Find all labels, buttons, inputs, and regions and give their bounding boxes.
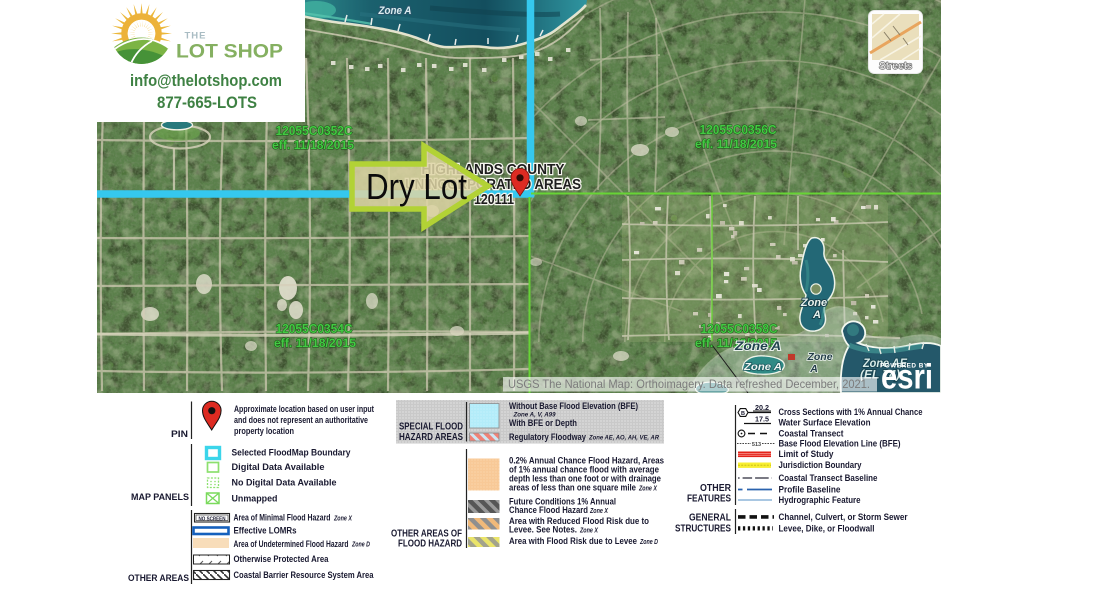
svg-text:Approximate location based on: Approximate location based on user input [234, 404, 374, 414]
svg-text:Base Flood Elevation Line (BFE: Base Flood Elevation Line (BFE) [779, 438, 901, 448]
svg-text:With BFE or Depth: With BFE or Depth [509, 418, 577, 428]
svg-text:LOT SHOP: LOT SHOP [176, 41, 283, 63]
svg-text:Coastal Transect: Coastal Transect [779, 429, 844, 439]
svg-text:17.5: 17.5 [755, 417, 769, 424]
svg-text:A: A [812, 309, 821, 321]
svg-text:Zone D: Zone D [351, 542, 370, 549]
svg-text:Zone AE, AO, AH, VE, AR: Zone AE, AO, AH, VE, AR [588, 435, 659, 442]
svg-text:Hydrographic Feature: Hydrographic Feature [779, 495, 861, 505]
svg-text:B: B [741, 411, 745, 417]
svg-text:Selected FloodMap Boundary: Selected FloodMap Boundary [232, 448, 351, 458]
svg-text:513: 513 [752, 442, 761, 448]
svg-text:Levee, Dike, or Floodwall: Levee, Dike, or Floodwall [779, 523, 875, 533]
svg-text:Unmapped: Unmapped [232, 494, 278, 504]
svg-text:HAZARD AREAS: HAZARD AREAS [399, 432, 463, 443]
svg-text:Effective LOMRs: Effective LOMRs [234, 525, 297, 535]
svg-text:esri: esri [881, 358, 933, 397]
svg-text:Without Base Flood Elevation (: Without Base Flood Elevation (BFE) [509, 401, 638, 411]
svg-text:Zone X: Zone X [579, 527, 599, 534]
svg-text:Limit of Study: Limit of Study [779, 449, 834, 459]
svg-text:FEATURES: FEATURES [687, 494, 731, 505]
svg-text:Zone A: Zone A [743, 361, 782, 373]
svg-text:12055C0354C: 12055C0354C [276, 322, 353, 336]
svg-text:Zone X: Zone X [333, 515, 353, 522]
svg-text:Water Surface Elevation: Water Surface Elevation [779, 417, 871, 427]
svg-text:OTHER: OTHER [700, 483, 732, 494]
svg-text:Zone D: Zone D [639, 539, 658, 546]
svg-text:Streets: Streets [879, 60, 912, 72]
svg-text:Coastal Barrier Resource Syste: Coastal Barrier Resource System Area [234, 570, 375, 580]
svg-text:Regulatory Floodway: Regulatory Floodway [509, 432, 586, 442]
svg-text:eff. 11/18/2015: eff. 11/18/2015 [272, 138, 354, 152]
svg-text:Zone X: Zone X [589, 508, 609, 515]
svg-text:Area of Undetermined Flood Haz: Area of Undetermined Flood Hazard [234, 539, 349, 549]
svg-text:12055C0352C: 12055C0352C [276, 124, 353, 138]
svg-text:eff. 11/18/2015: eff. 11/18/2015 [695, 137, 777, 151]
svg-text:MAP PANELS: MAP PANELS [131, 492, 189, 503]
svg-text:Zone: Zone [806, 351, 832, 363]
svg-text:PIN: PIN [171, 429, 188, 440]
svg-text:Otherwise Protected Area: Otherwise Protected Area [234, 554, 330, 564]
svg-text:12055C0356C: 12055C0356C [700, 123, 777, 137]
svg-text:Coastal Transect Baseline: Coastal Transect Baseline [779, 473, 878, 483]
svg-text:eff. 11/18/2015: eff. 11/18/2015 [274, 336, 356, 350]
svg-text:NO SCREEN: NO SCREEN [199, 516, 226, 522]
svg-text:Profile Baseline: Profile Baseline [779, 485, 841, 495]
svg-text:OTHER AREAS: OTHER AREAS [128, 573, 189, 584]
svg-text:Digital Data Available: Digital Data Available [232, 462, 325, 472]
svg-text:Area with Flood Risk due to Le: Area with Flood Risk due to Levee [509, 536, 637, 546]
svg-text:Dry Lot: Dry Lot [366, 166, 467, 207]
svg-text:A: A [809, 363, 818, 375]
svg-text:Chance Flood Hazard: Chance Flood Hazard [509, 505, 588, 515]
svg-text:Zone: Zone [800, 297, 827, 309]
svg-text:120111: 120111 [474, 192, 514, 208]
svg-text:Jurisdiction Boundary: Jurisdiction Boundary [779, 460, 862, 470]
svg-text:GENERAL: GENERAL [689, 513, 731, 524]
svg-text:and does not represent an auth: and does not represent an authoritative [234, 415, 368, 425]
svg-text:No Digital Data Available: No Digital Data Available [232, 478, 337, 488]
svg-text:12055C0358C: 12055C0358C [701, 322, 778, 336]
svg-text:Levee. See Notes.: Levee. See Notes. [509, 525, 577, 535]
svg-text:Channel, Culvert, or Storm Sew: Channel, Culvert, or Storm Sewer [779, 512, 908, 522]
svg-text:USGS The National Map: Orthoim: USGS The National Map: Orthoimagery. Dat… [508, 377, 870, 391]
svg-text:FLOOD HAZARD: FLOOD HAZARD [398, 539, 462, 550]
svg-text:info@thelotshop.com: info@thelotshop.com [130, 72, 282, 90]
svg-text:Area of Minimal Flood Hazard: Area of Minimal Flood Hazard [234, 513, 331, 523]
svg-text:areas of less than one square: areas of less than one square mile [509, 483, 636, 493]
svg-text:Cross Sections with 1% Annual: Cross Sections with 1% Annual Chance [779, 407, 923, 417]
svg-text:Zone A: Zone A [734, 339, 781, 353]
svg-text:Zone A: Zone A [378, 5, 412, 17]
svg-text:property location: property location [234, 426, 294, 436]
svg-text:Zone X: Zone X [638, 485, 658, 492]
svg-text:877-665-LOTS: 877-665-LOTS [157, 93, 257, 112]
svg-text:SPECIAL FLOOD: SPECIAL FLOOD [399, 422, 463, 433]
svg-text:STRUCTURES: STRUCTURES [675, 524, 731, 535]
